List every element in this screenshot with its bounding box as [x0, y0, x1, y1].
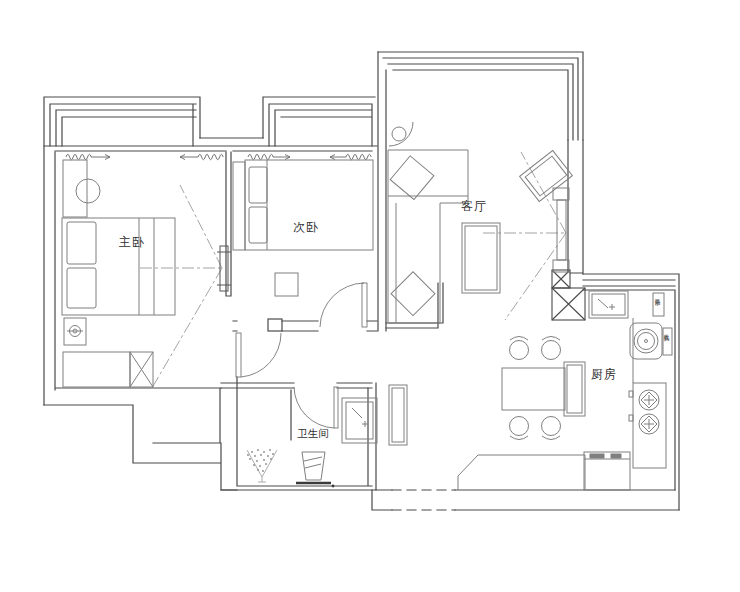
label-kitchen: 厨房: [591, 367, 617, 381]
label-bathroom: 卫生间: [297, 427, 329, 439]
label-master-bedroom: 主卧: [119, 235, 145, 249]
floor-plan-canvas: 主卧 次卧 客厅 厨房 卫生间 热水器 洗衣机: [0, 0, 740, 592]
label-living-room: 客厅: [461, 199, 487, 213]
label-second-bedroom: 次卧: [293, 220, 319, 234]
floor-plan-drawing: 主卧 次卧 客厅 厨房 卫生间 热水器 洗衣机: [0, 0, 740, 592]
background: [0, 0, 740, 592]
